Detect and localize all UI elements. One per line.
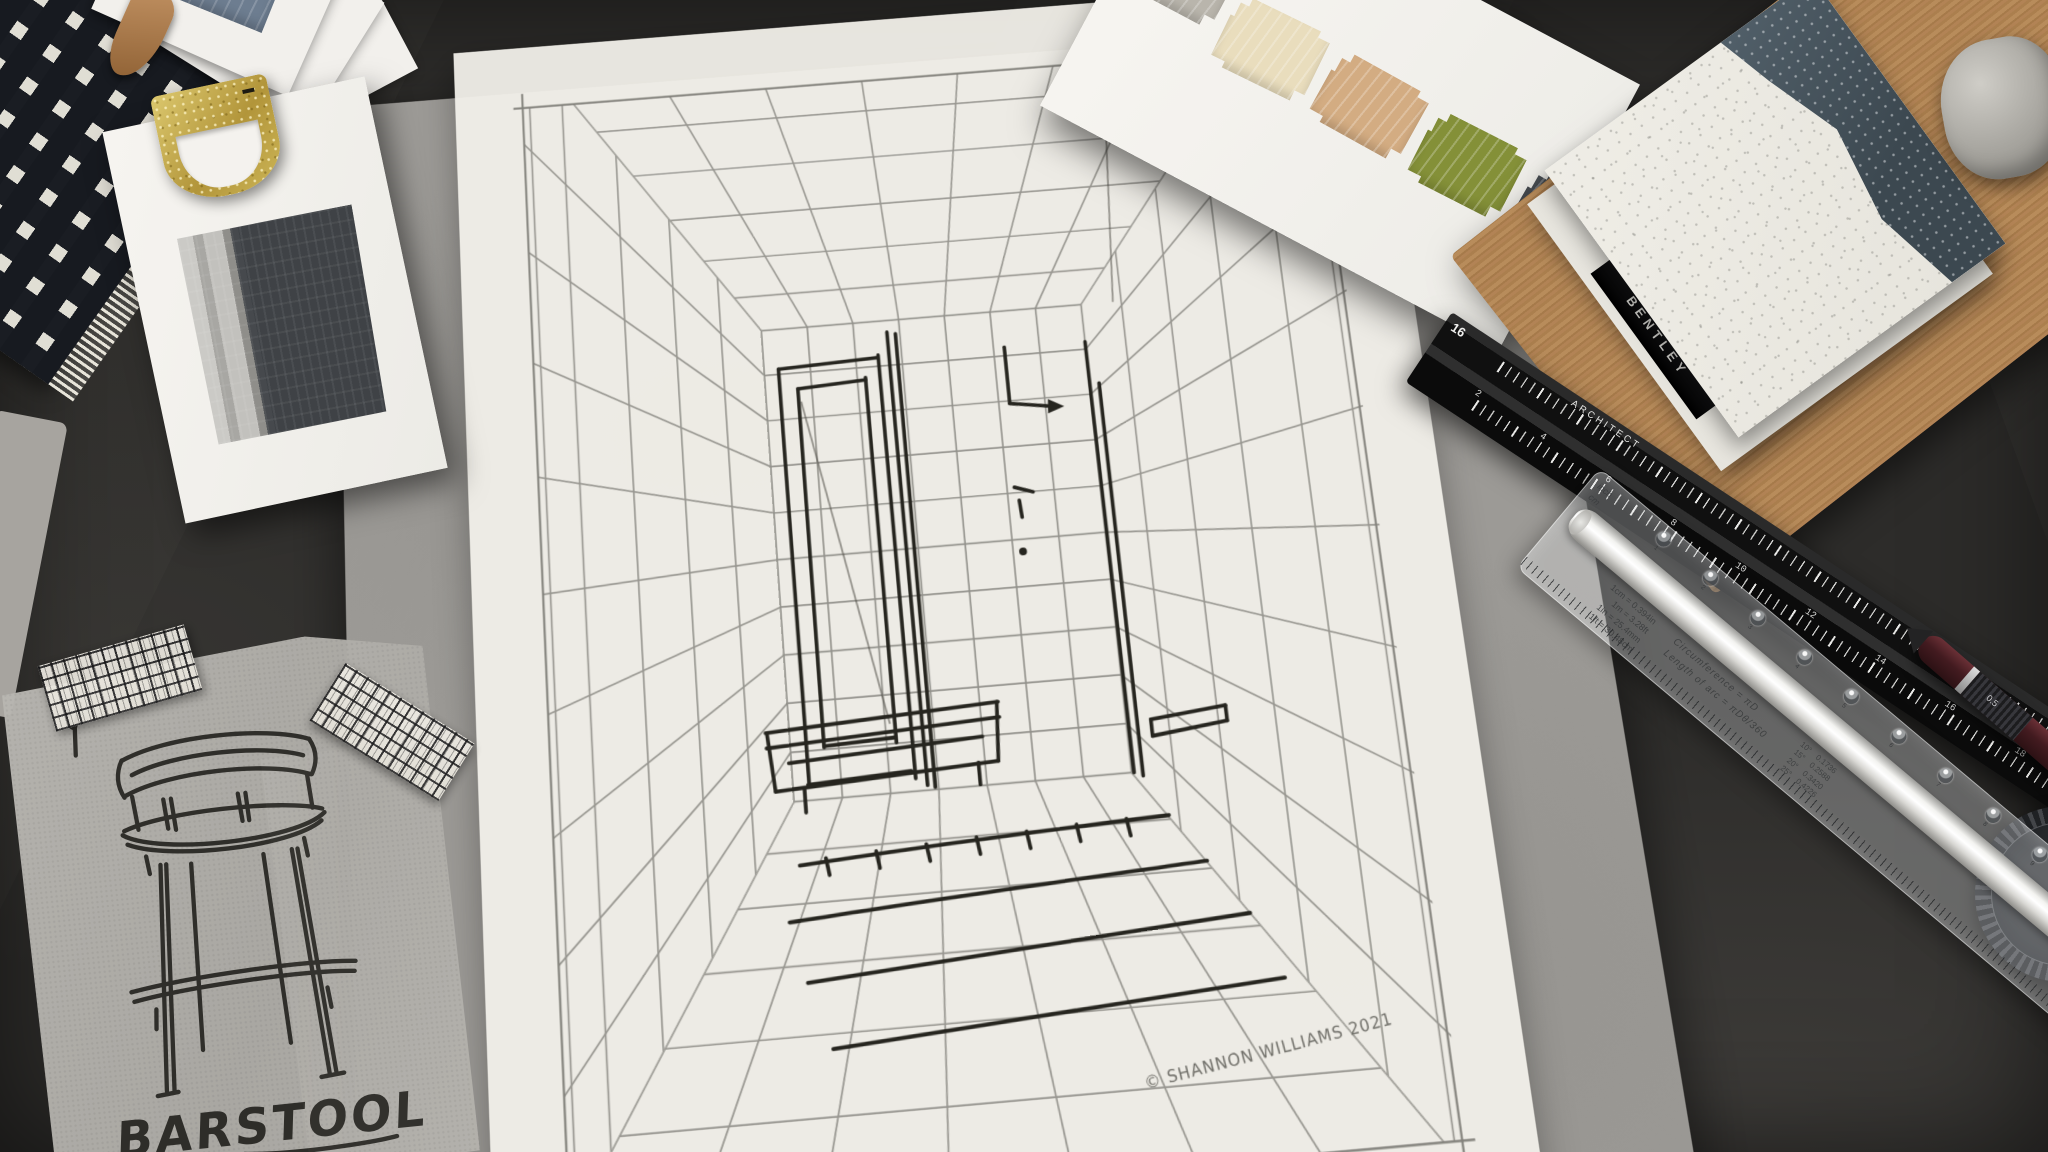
unit-labels: inch cm [1585,481,1616,513]
ruler-end-number: 16 [1448,320,1468,340]
template-hole: 2 [1695,568,1721,595]
template-hole: 5 [1836,686,1862,713]
template-hole: 9 [2024,844,2048,871]
hole-number: 3 [1746,623,1753,631]
sketch-signature: © SHANNON WILLIAMS 2021 [1142,1009,1395,1094]
template-hole: 7 [1930,765,1956,792]
hole-number: 7 [1934,781,1941,789]
template-hole: 3 [1742,607,1768,634]
hole-number: 6 [1887,742,1894,750]
hole-number: 4 [1793,663,1800,671]
marker-swatch-cream [1208,0,1333,105]
marker-swatch-camel [1306,48,1432,164]
charcoal-marker-swatch [177,204,391,445]
hole-number: 8 [1981,821,1988,829]
ruler-number: 2 [1473,387,1484,399]
hole-number: 5 [1840,702,1847,710]
template-hole: 6 [1883,726,1909,753]
barstool-title: BARSTOOL [116,1080,429,1152]
designer-desk-scene: © SHANNON WILLIAMS 2021 BARSTOOL BENTLEY [0,0,2048,1152]
template-hole: 8 [1977,805,2003,832]
hole-number: 2 [1699,584,1706,592]
template-hole: 4 [1789,647,1815,674]
hole-number: 1 [1652,544,1659,552]
marker-swatch-olive [1404,108,1529,222]
template-hole: 1 [1648,529,1674,556]
hole-number: 9 [2028,860,2035,868]
